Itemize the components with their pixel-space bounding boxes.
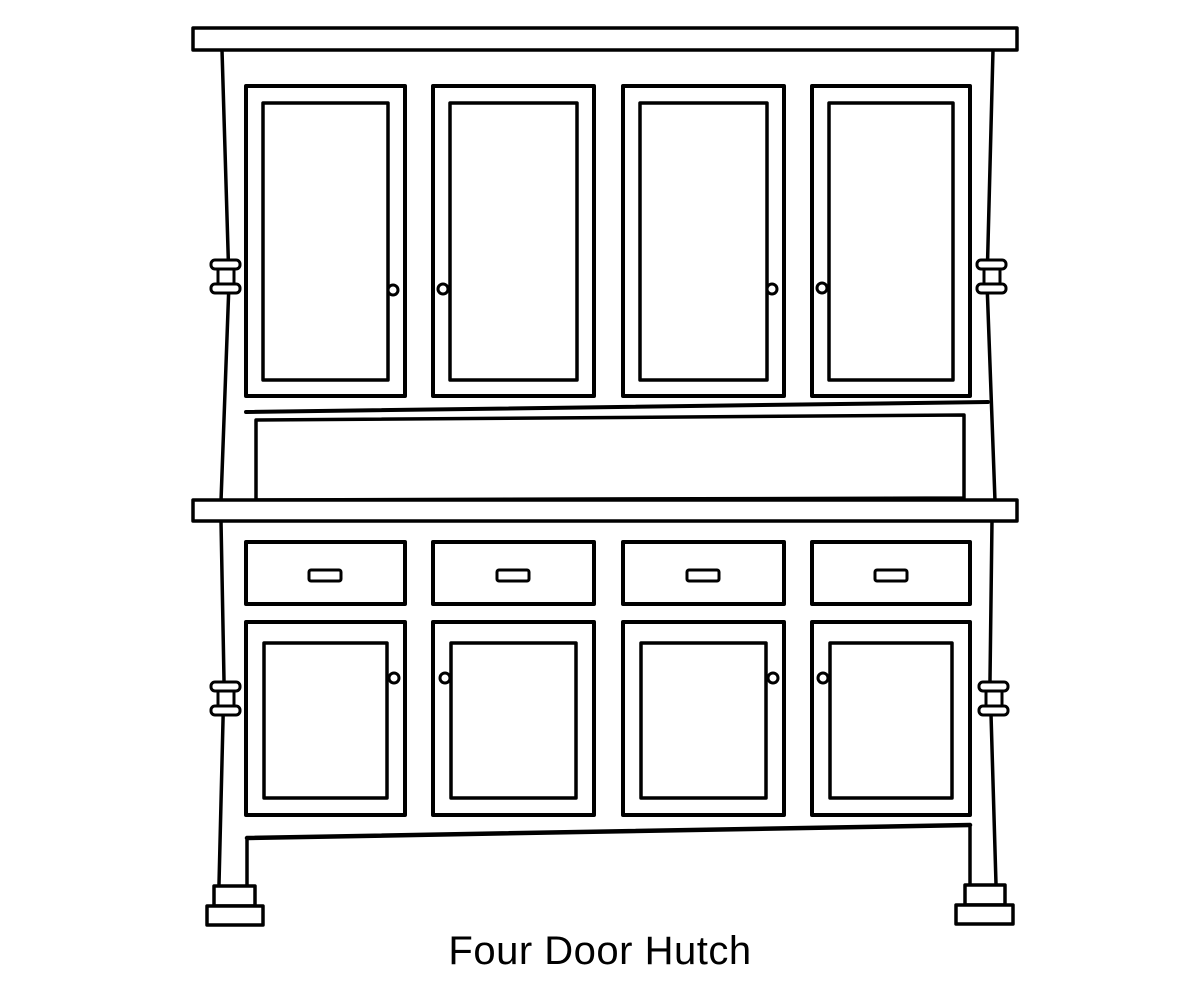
- finial-top-flange: [977, 260, 1006, 269]
- drawers: [246, 542, 970, 604]
- open-shelf-recess: [256, 415, 964, 500]
- left-foot-lower-block: [207, 906, 263, 925]
- drawer-pull: [309, 570, 341, 581]
- door-knob: [818, 673, 828, 683]
- upper-right-finial: [977, 260, 1006, 293]
- finial-bottom-flange: [211, 706, 240, 715]
- door-knob: [388, 285, 398, 295]
- door-knob: [767, 284, 777, 294]
- door-knob: [389, 673, 399, 683]
- finial-top-flange: [211, 260, 240, 269]
- finial-bottom-flange: [211, 284, 240, 293]
- right-foot: [956, 885, 1013, 924]
- lower-door-1: [246, 622, 405, 815]
- counter-board: [193, 500, 1017, 521]
- door-knob: [440, 673, 450, 683]
- crown-board: [193, 28, 1017, 50]
- bottom-rail: [247, 825, 970, 838]
- caption-text: Four Door Hutch: [448, 929, 751, 973]
- drawer-3: [623, 542, 784, 604]
- left-foot: [207, 886, 263, 925]
- feet: [207, 885, 1013, 925]
- door-panel: [263, 103, 388, 380]
- lower-right-finial: [979, 682, 1008, 715]
- drawer-4: [812, 542, 970, 604]
- door-knob: [768, 673, 778, 683]
- left-foot-upper-block: [214, 886, 255, 906]
- upper-door-3: [623, 86, 784, 396]
- upper-door-1: [246, 86, 405, 396]
- drawer-pull: [875, 570, 907, 581]
- upper-shelf-rail: [246, 402, 988, 412]
- upper-door-2: [433, 86, 594, 396]
- upper-doors: [246, 86, 970, 396]
- door-knob: [438, 284, 448, 294]
- lower-left-finial: [211, 682, 240, 715]
- door-panel: [641, 643, 766, 798]
- drawer-1: [246, 542, 405, 604]
- lower-door-2: [433, 622, 594, 815]
- upper-door-4: [812, 86, 970, 396]
- drawer-pull: [687, 570, 719, 581]
- finial-bottom-flange: [979, 706, 1008, 715]
- door-knob: [817, 283, 827, 293]
- door-panel: [830, 643, 952, 798]
- lower-doors: [246, 622, 970, 815]
- door-panel: [640, 103, 767, 380]
- finial-top-flange: [979, 682, 1008, 691]
- right-foot-lower-block: [956, 905, 1013, 924]
- door-panel: [829, 103, 953, 380]
- lower-door-4: [812, 622, 970, 815]
- door-panel: [264, 643, 387, 798]
- hutch-line-drawing: Four Door Hutch: [0, 0, 1200, 1000]
- upper-left-finial: [211, 260, 240, 293]
- drawer-pull: [497, 570, 529, 581]
- door-panel: [450, 103, 577, 380]
- right-foot-upper-block: [965, 885, 1005, 905]
- drawer-2: [433, 542, 594, 604]
- finial-bottom-flange: [977, 284, 1006, 293]
- lower-door-3: [623, 622, 784, 815]
- finial-top-flange: [211, 682, 240, 691]
- door-panel: [451, 643, 576, 798]
- hutch-illustration-page: Four Door Hutch: [0, 0, 1200, 1000]
